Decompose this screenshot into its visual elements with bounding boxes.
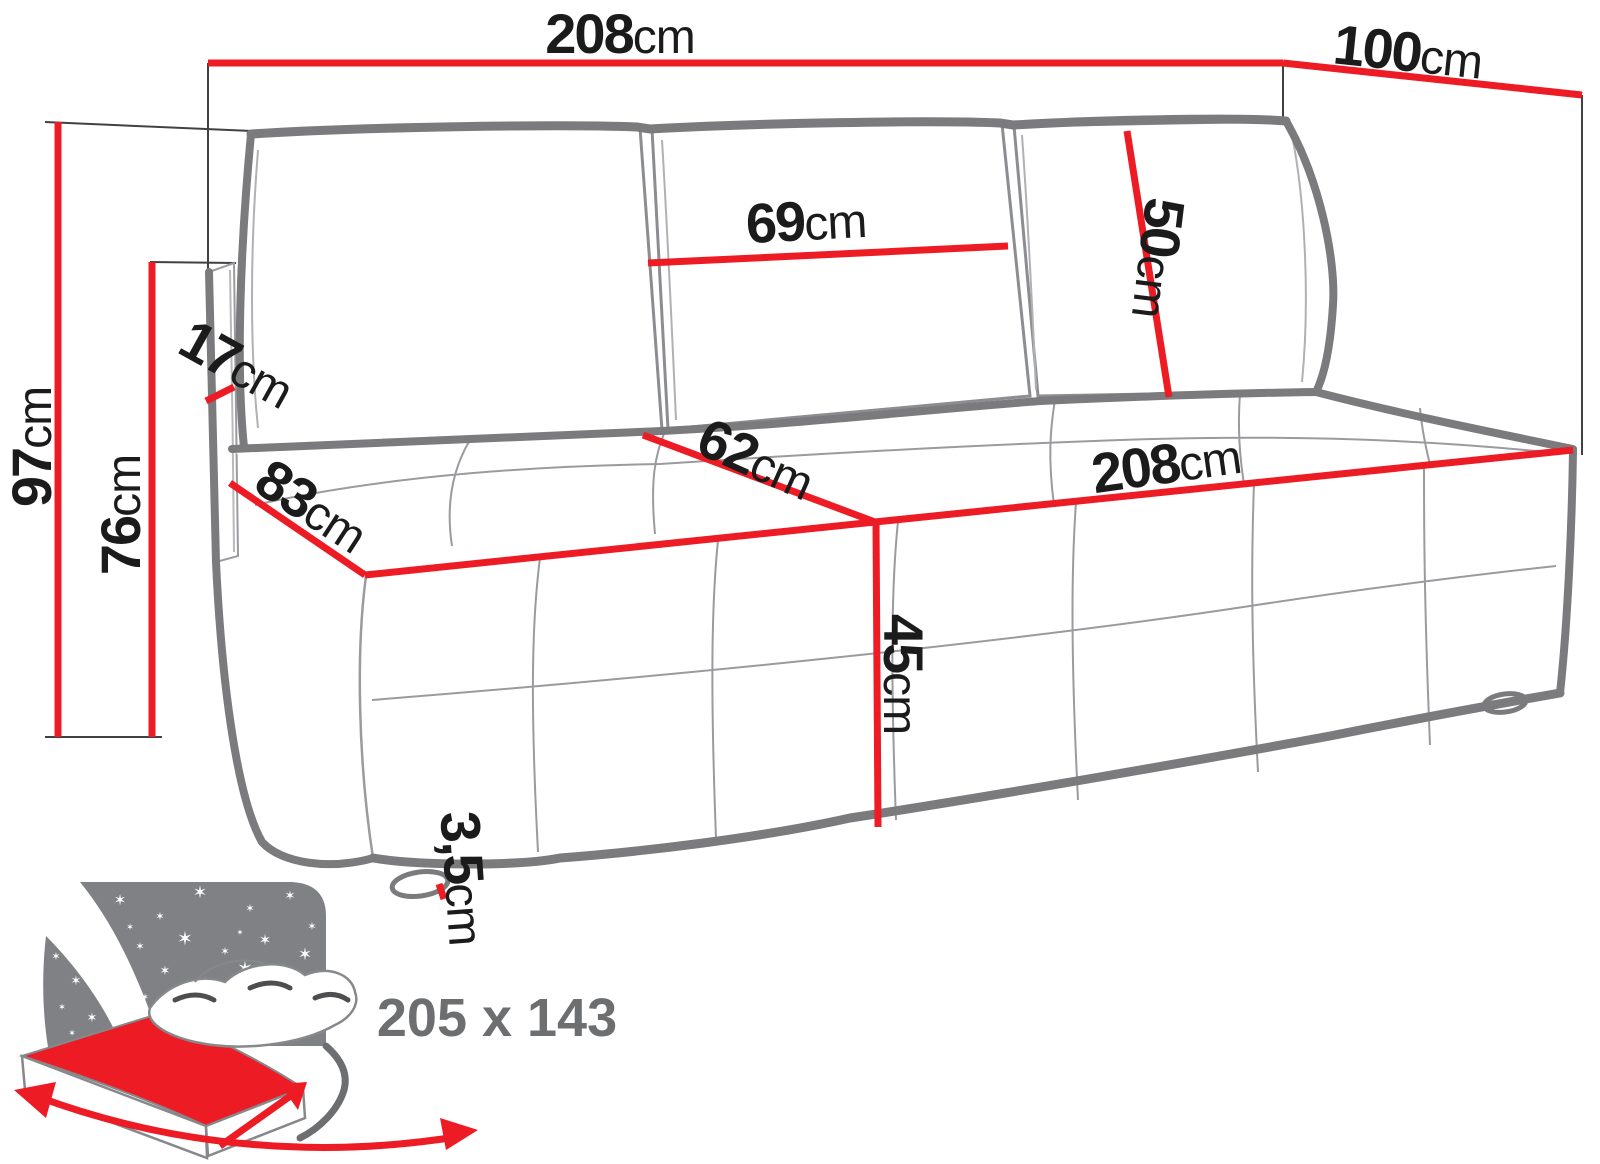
svg-text:✶: ✶ (58, 1003, 66, 1013)
svg-text:✶: ✶ (193, 883, 207, 903)
dim-value: 205 x 143 (377, 988, 617, 1048)
svg-text:✶: ✶ (285, 889, 296, 904)
dim-unit: cm (98, 455, 151, 517)
svg-text:✶: ✶ (102, 989, 110, 999)
svg-text:✶: ✶ (51, 950, 60, 963)
svg-text:✶: ✶ (220, 945, 229, 958)
sofa-illustration (209, 119, 1573, 900)
svg-text:✶: ✶ (237, 928, 244, 937)
sofa-dimension-diagram: ✶✶✶✶✶✶✶✶✶✶✶✶✶✶✶✶✶✶✶✶✶✶✶✶✶✶✶✶✶✶ (0, 0, 1600, 1164)
dim-value: 208 (545, 2, 632, 65)
dim-value: 45 (872, 614, 935, 672)
svg-text:✶: ✶ (177, 928, 193, 950)
dim-unit: cm (1175, 431, 1244, 492)
svg-text:✶: ✶ (87, 1011, 98, 1026)
svg-text:✶: ✶ (307, 920, 316, 933)
dim-label-bed-surface: 205 x 143 (377, 991, 617, 1045)
dim-unit: cm (1121, 253, 1181, 321)
dim-value: 100 (1330, 12, 1424, 84)
dim-label-back-cushion-width: 69cm (744, 190, 867, 252)
dim-unit: cm (633, 11, 695, 64)
svg-text:✶: ✶ (155, 910, 164, 923)
dim-label-backrest-height: 76cm (93, 455, 149, 575)
svg-text:✶: ✶ (141, 993, 149, 1003)
svg-text:✶: ✶ (135, 940, 144, 953)
dim-value: 50 (1127, 195, 1197, 261)
svg-text:✶: ✶ (114, 891, 127, 909)
dim-label-seat-height: 45cm (875, 614, 931, 734)
dim-value: 208 (1088, 431, 1183, 506)
svg-text:✶: ✶ (126, 923, 134, 933)
svg-text:✶: ✶ (160, 964, 171, 979)
svg-text:✶: ✶ (71, 974, 82, 989)
dim-value: 97 (0, 449, 63, 507)
dim-value: 3,5 (428, 809, 496, 885)
svg-text:✶: ✶ (298, 945, 312, 965)
dim-label-total-height: 97cm (4, 387, 60, 507)
dim-label-total-width: 208cm (545, 6, 694, 62)
dim-unit: cm (803, 195, 868, 251)
dim-value: 69 (744, 189, 806, 255)
dim-unit: cm (9, 387, 62, 449)
dim-unit: cm (434, 881, 491, 947)
svg-text:✶: ✶ (259, 931, 272, 949)
dim-label-leg-height: 3,5cm (431, 809, 496, 946)
dim-unit: cm (873, 672, 926, 734)
svg-text:✶: ✶ (245, 902, 254, 915)
dim-unit: cm (1418, 30, 1485, 89)
svg-text:✶: ✶ (68, 1029, 76, 1039)
diagram-canvas: ✶✶✶✶✶✶✶✶✶✶✶✶✶✶✶✶✶✶✶✶✶✶✶✶✶✶✶✶✶✶ (0, 0, 1600, 1164)
dim-value: 76 (89, 517, 152, 575)
